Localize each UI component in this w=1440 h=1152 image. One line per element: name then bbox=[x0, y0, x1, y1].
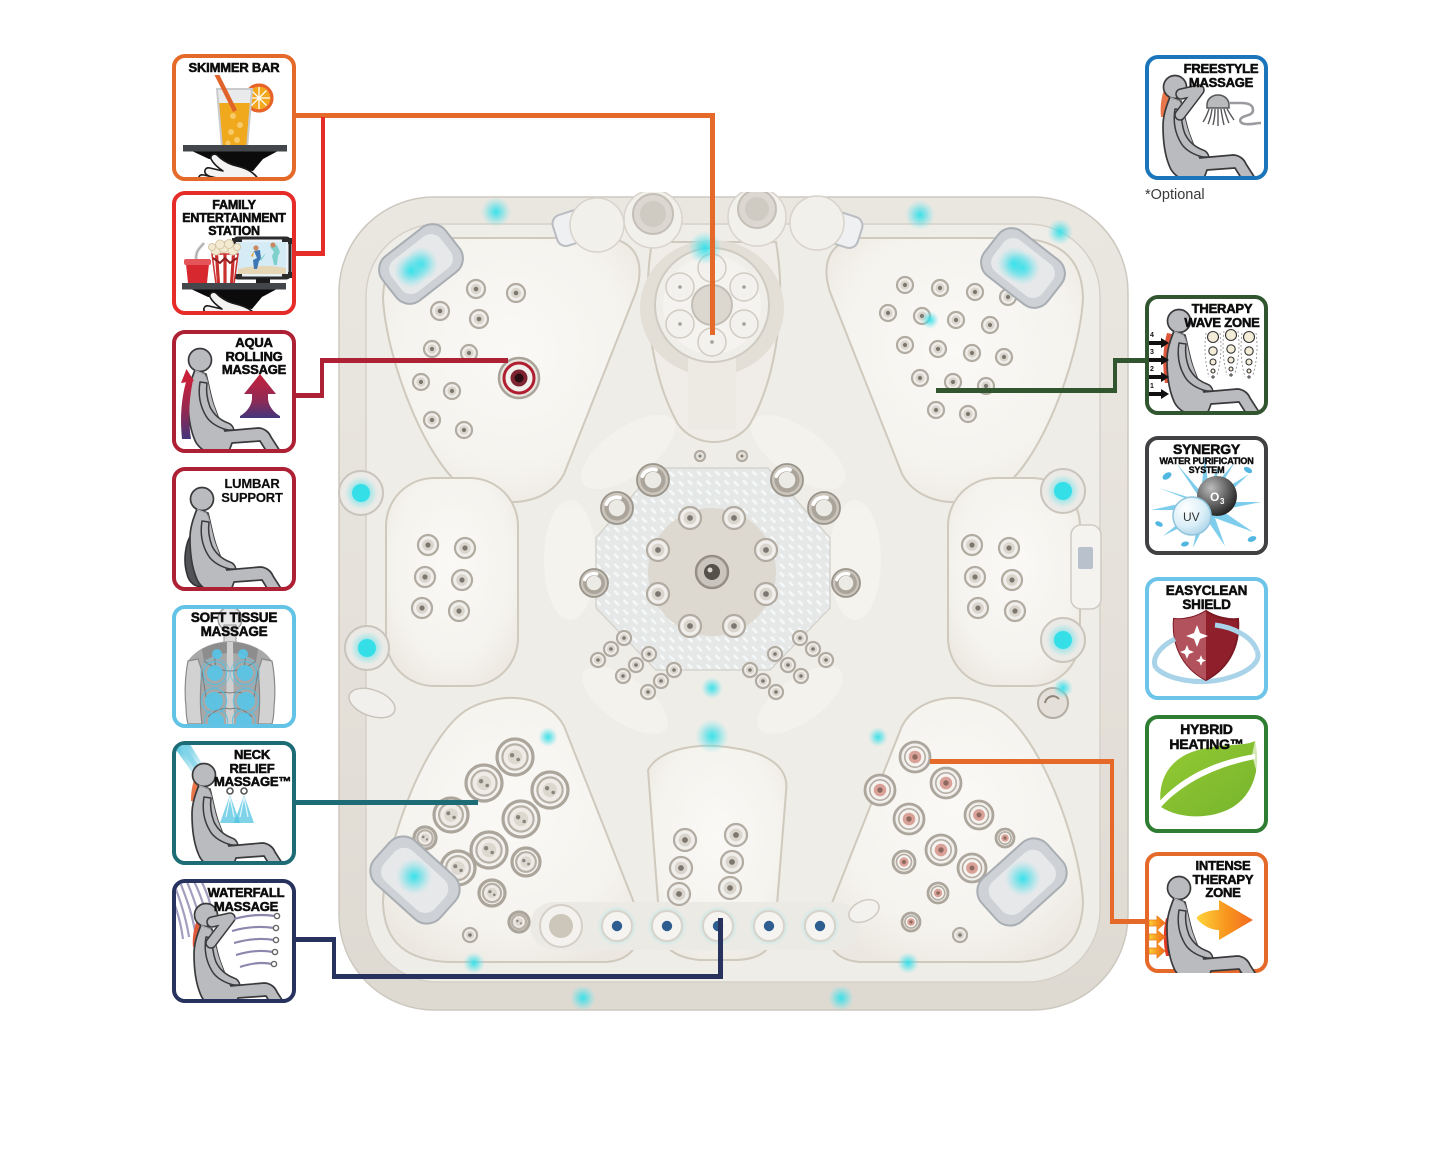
svg-text:4: 4 bbox=[1150, 332, 1154, 339]
svg-text:2: 2 bbox=[1150, 366, 1154, 373]
svg-text:3: 3 bbox=[1220, 497, 1225, 506]
svg-text:3: 3 bbox=[1150, 349, 1154, 356]
svg-text:UV: UV bbox=[1183, 510, 1200, 524]
svg-text:O: O bbox=[1210, 490, 1219, 504]
svg-text:1: 1 bbox=[1150, 383, 1154, 390]
